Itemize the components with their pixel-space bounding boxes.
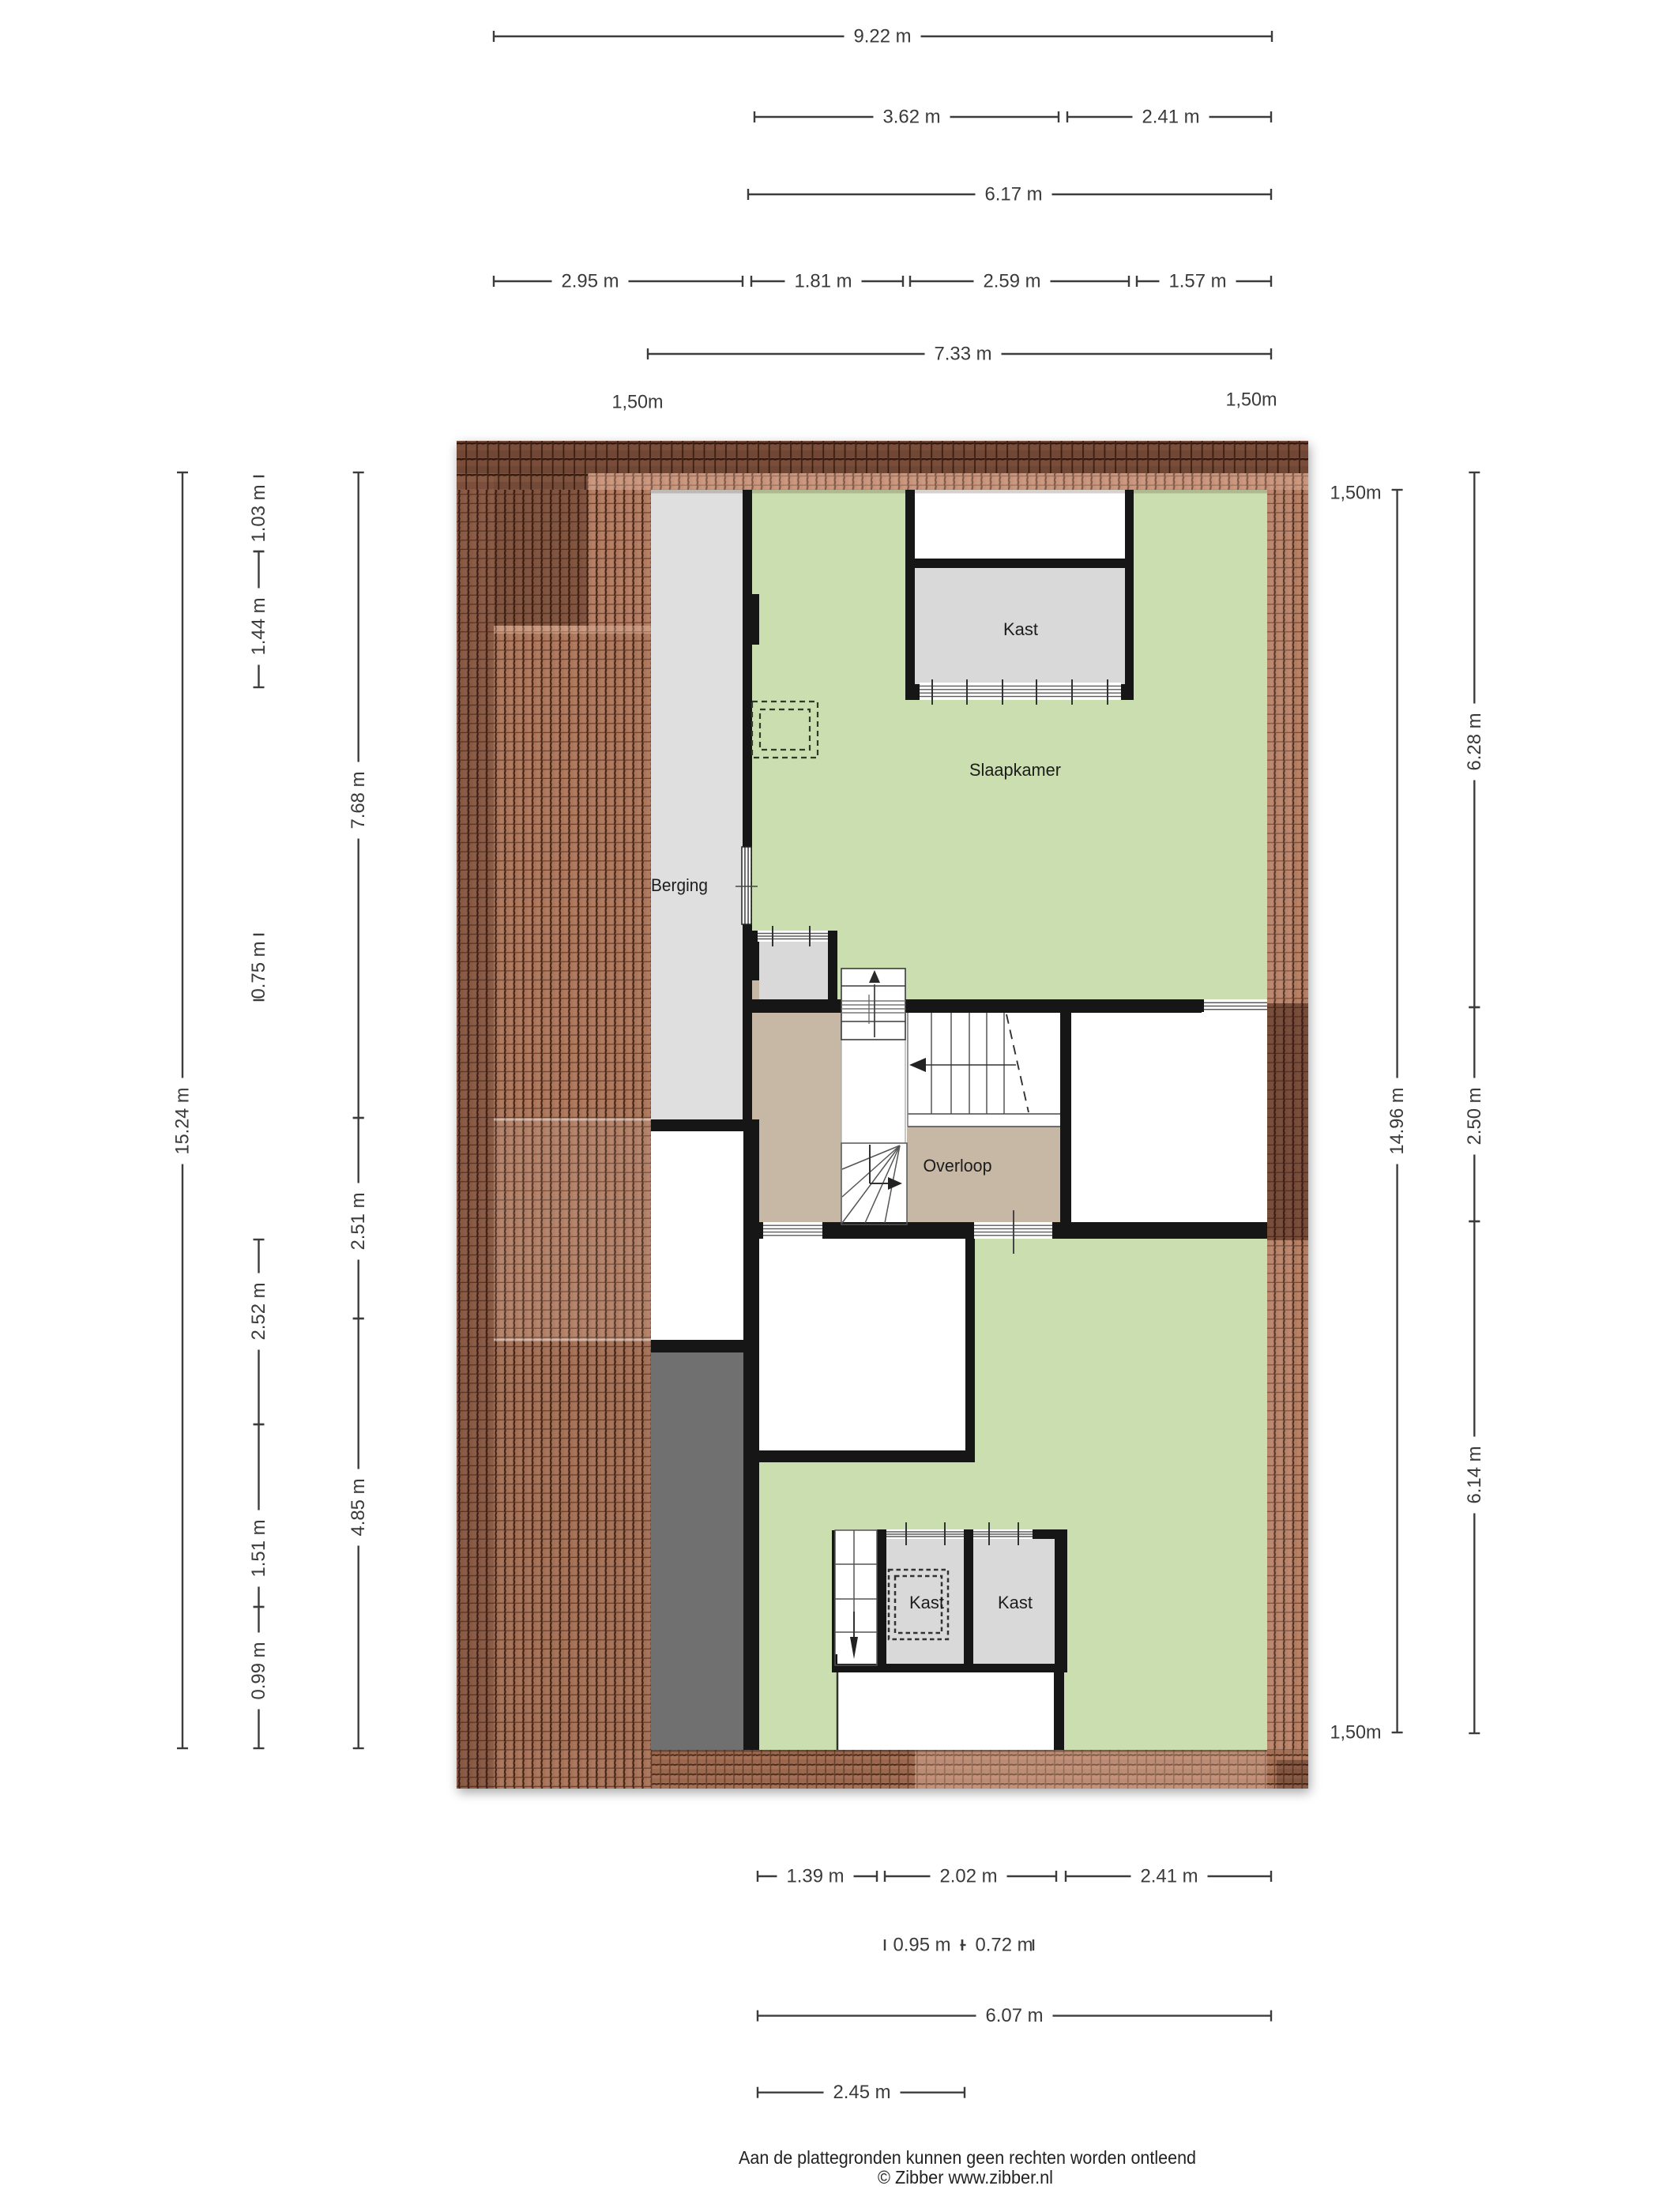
svg-text:2.45 m: 2.45 m <box>833 2082 891 2103</box>
svg-text:0.72 m: 0.72 m <box>976 1935 1033 1956</box>
svg-text:2.95 m: 2.95 m <box>562 271 619 292</box>
svg-text:2.52 m: 2.52 m <box>248 1283 269 1341</box>
svg-text:2.59 m: 2.59 m <box>984 271 1041 292</box>
svg-text:3.62 m: 3.62 m <box>883 107 941 128</box>
svg-text:1,50m: 1,50m <box>1330 1722 1382 1744</box>
svg-text:0.95 m: 0.95 m <box>893 1935 951 1956</box>
svg-text:© Zibber www.zibber.nl: © Zibber www.zibber.nl <box>878 2167 1053 2188</box>
svg-text:0.99 m: 0.99 m <box>248 1642 269 1700</box>
svg-text:2.41 m: 2.41 m <box>1142 107 1200 128</box>
svg-text:2.51 m: 2.51 m <box>348 1193 369 1251</box>
svg-text:Kast: Kast <box>998 1593 1033 1612</box>
svg-text:1.57 m: 1.57 m <box>1169 271 1227 292</box>
svg-text:1.44 m: 1.44 m <box>248 598 269 656</box>
svg-text:15.24 m: 15.24 m <box>172 1088 194 1155</box>
svg-text:Aan de plattegronden kunnen ge: Aan de plattegronden kunnen geen rechten… <box>739 2147 1196 2168</box>
svg-text:4.85 m: 4.85 m <box>348 1479 369 1537</box>
svg-text:Slaapkamer: Slaapkamer <box>969 760 1061 780</box>
svg-text:2.41 m: 2.41 m <box>1141 1866 1198 1887</box>
svg-text:9.22 m: 9.22 m <box>854 26 912 47</box>
svg-text:1.51 m: 1.51 m <box>248 1520 269 1578</box>
svg-text:14.96 m: 14.96 m <box>1386 1088 1408 1155</box>
svg-text:Overloop: Overloop <box>924 1156 992 1176</box>
svg-text:2.50 m: 2.50 m <box>1464 1088 1485 1145</box>
svg-text:2.02 m: 2.02 m <box>940 1866 998 1887</box>
svg-text:1.81 m: 1.81 m <box>795 271 852 292</box>
svg-text:1,50m: 1,50m <box>1330 483 1382 504</box>
svg-text:1,50m: 1,50m <box>612 392 664 413</box>
svg-text:6.17 m: 6.17 m <box>985 184 1043 205</box>
svg-text:0.75 m: 0.75 m <box>248 942 269 999</box>
svg-text:Berging: Berging <box>651 875 708 895</box>
svg-text:6.28 m: 6.28 m <box>1464 713 1485 771</box>
svg-text:7.33 m: 7.33 m <box>935 344 992 365</box>
svg-text:6.07 m: 6.07 m <box>986 2005 1044 2026</box>
svg-text:7.68 m: 7.68 m <box>348 772 369 829</box>
svg-text:1.39 m: 1.39 m <box>787 1866 845 1887</box>
svg-text:Kast: Kast <box>909 1593 944 1612</box>
svg-text:6.14 m: 6.14 m <box>1464 1446 1485 1504</box>
svg-text:Kast: Kast <box>1003 619 1038 639</box>
svg-text:1,50m: 1,50m <box>1226 389 1277 411</box>
svg-text:1.03 m: 1.03 m <box>248 485 269 543</box>
